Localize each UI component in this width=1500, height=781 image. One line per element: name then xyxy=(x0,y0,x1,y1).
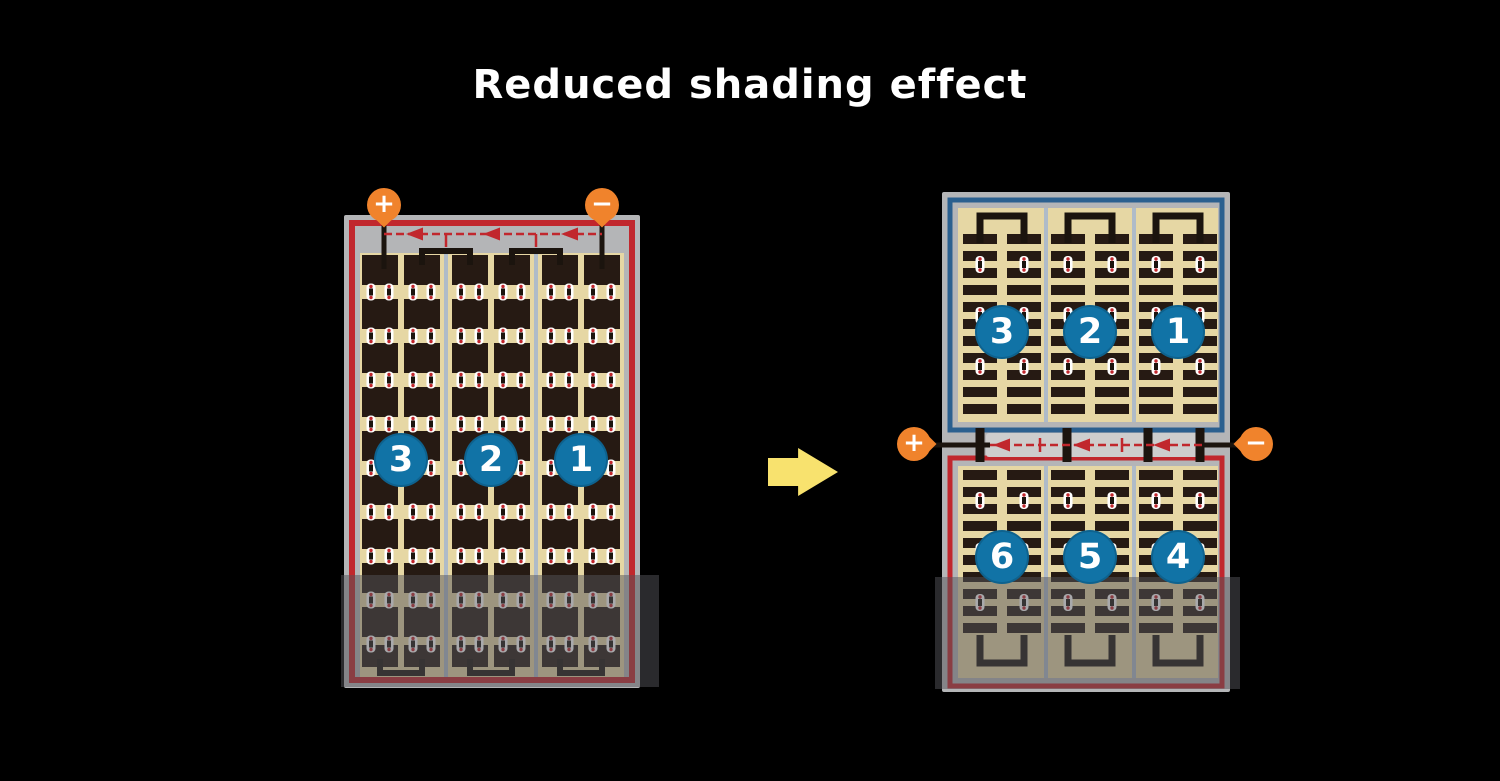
diagram-canvas: Reduced shading effect + − + − 3 2 1 3 2… xyxy=(0,0,1500,781)
minus-icon: − xyxy=(591,191,613,217)
right-bottom-string-badge-4: 4 xyxy=(1151,530,1205,584)
right-top-string-badge-3: 3 xyxy=(975,305,1029,359)
minus-icon: − xyxy=(1245,430,1267,456)
plus-icon: + xyxy=(903,430,925,456)
right-bottom-string-badge-5: 5 xyxy=(1063,530,1117,584)
right-panel-positive-terminal: + xyxy=(897,427,931,461)
left-panel-positive-terminal: + xyxy=(367,188,401,222)
diagram-title: Reduced shading effect xyxy=(0,62,1500,108)
half-cut-module-drawing xyxy=(890,185,1280,705)
right-panel-negative-terminal: − xyxy=(1239,427,1273,461)
right-bottom-string-badge-6: 6 xyxy=(975,530,1029,584)
left-string-badge-2: 2 xyxy=(464,433,518,487)
left-string-badge-1: 1 xyxy=(554,433,608,487)
transition-arrow-icon xyxy=(768,447,838,497)
right-top-string-badge-1: 1 xyxy=(1151,305,1205,359)
right-top-string-badge-2: 2 xyxy=(1063,305,1117,359)
plus-icon: + xyxy=(373,191,395,217)
left-panel-negative-terminal: − xyxy=(585,188,619,222)
left-string-badge-3: 3 xyxy=(374,433,428,487)
